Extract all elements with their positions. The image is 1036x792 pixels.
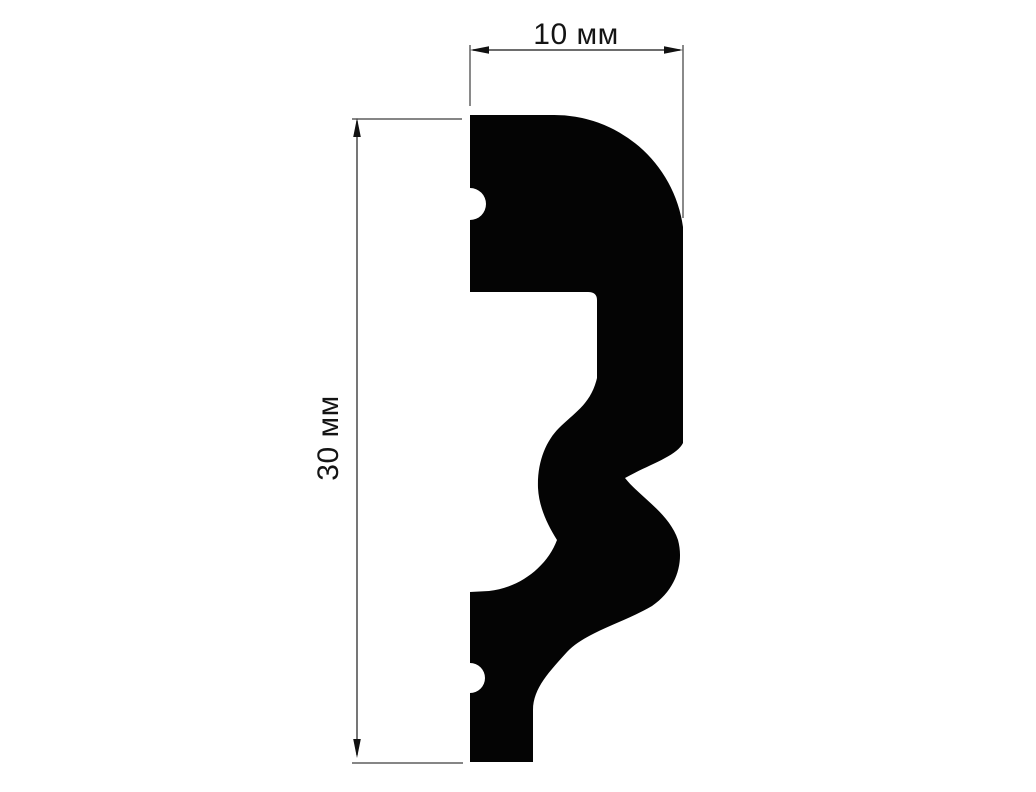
- molding-profile-drawing: 10 мм 30 мм: [0, 0, 1036, 792]
- height-dimension: 30 мм: [312, 118, 463, 763]
- molding-profile-path: [470, 115, 683, 762]
- arrow-right-icon: [664, 46, 683, 54]
- height-dimension-label: 30 мм: [312, 395, 345, 480]
- arrow-left-icon: [470, 46, 489, 54]
- molding-profile-shape: [470, 115, 683, 762]
- arrow-down-icon: [353, 739, 361, 758]
- arrow-up-icon: [353, 118, 361, 137]
- width-dimension-label: 10 мм: [533, 18, 618, 51]
- technical-drawing-canvas: 10 мм 30 мм: [0, 0, 1036, 792]
